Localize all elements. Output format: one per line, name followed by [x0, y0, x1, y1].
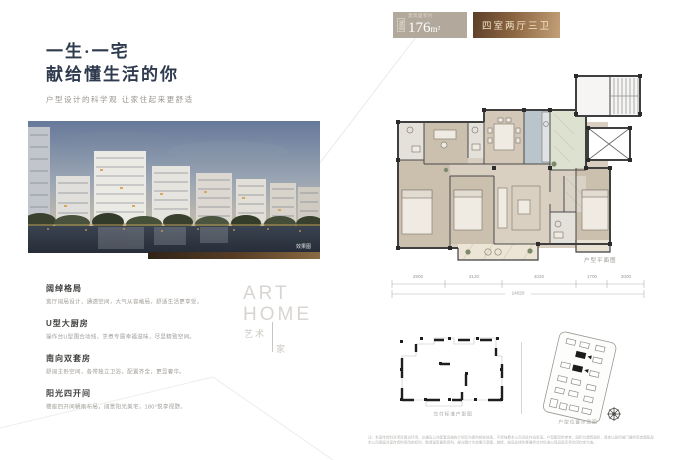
feature-item: 南向双套房 舒阔主卧空间，各带独立卫浴，配置齐全，更显奢华。: [46, 353, 236, 376]
feature-item: U型大厨房 操作台U型围合动线，烹煮专属幸福滋味，尽显精致空间。: [46, 318, 236, 341]
feature-heading: 阳光四开间: [46, 388, 236, 399]
feature-desc: 舒阔主卧空间，各带独立卫浴，配置齐全，更显奢华。: [46, 367, 221, 375]
building-render-image: 效果图: [28, 121, 320, 253]
art-home-watermark: ART HOME: [243, 283, 312, 325]
area-unit: m²: [431, 24, 441, 34]
plan-caption: 户型平面图: [584, 256, 617, 264]
structural-plan-caption: 交付标准户型图: [409, 410, 497, 417]
feature-heading: 阔绰格局: [46, 283, 236, 294]
title-line2: 献给懂生活的你: [46, 63, 179, 86]
watermark-cn1: 艺术: [244, 327, 266, 340]
brochure-page: 一生·一宅 献给懂生活的你 户型设计的科学观 让家住起来更舒适: [0, 0, 680, 460]
feature-desc: 楼座四开间朝南布局，阔景阳光美宅，180°悦享视野。: [46, 402, 221, 410]
dim-total: 14020: [512, 291, 525, 296]
stairwell: [574, 74, 642, 116]
page-title: 一生·一宅 献给懂生活的你: [46, 40, 179, 86]
watermark-en2: HOME: [243, 304, 312, 325]
photo-shadow-bar: [148, 252, 320, 259]
floor-plan: 户型平面图: [388, 72, 652, 272]
photo-caption: 效果图: [296, 243, 311, 250]
layout-badge: 四室两厅三卫: [473, 12, 560, 38]
dim-seg-5: 2000: [621, 274, 632, 279]
disclaimer-line2: 本公司保留对宣传资料修改的权利，敬请留意最新资料。部分图片为效果示意图，装修、部…: [368, 440, 654, 445]
feature-desc: 宽厅阔局设计，通透空间，大气从容格局，舒适生活更享受。: [46, 297, 221, 305]
structural-plan-diagram: [396, 334, 508, 410]
elevator: [586, 126, 632, 162]
dim-seg-2: 3120: [469, 274, 480, 279]
site-plan-diagram: [526, 330, 630, 430]
feature-heading: U型大厨房: [46, 318, 236, 329]
dimension-line: 2900 3120 4020 1700 2000 14020: [388, 272, 652, 300]
site-plan-caption: 户型位置示意图: [533, 418, 623, 425]
dim-seg-3: 4020: [534, 274, 545, 279]
feature-list: 阔绰格局 宽厅阔局设计，通透空间，大气从容格局，舒适生活更享受。 U型大厨房 操…: [46, 283, 236, 423]
area-side-label: 建面: [397, 18, 405, 32]
dim-seg-4: 1700: [587, 274, 598, 279]
feature-item: 阳光四开间 楼座四开间朝南布局，阔景阳光美宅，180°悦享视野。: [46, 388, 236, 411]
page-subtitle: 户型设计的科学观 让家住起来更舒适: [46, 94, 194, 105]
mini-divider: [521, 342, 522, 414]
area-badge: 建面 建筑面积约 176m²: [393, 12, 467, 38]
feature-heading: 南向双套房: [46, 353, 236, 364]
dim-seg-1: 2900: [413, 274, 424, 279]
watermark-divider: [272, 322, 273, 352]
title-line1: 一生·一宅: [46, 40, 179, 63]
watermark-cn2: 家: [276, 342, 285, 355]
feature-desc: 操作台U型围合动线，烹煮专属幸福滋味，尽显精致空间。: [46, 332, 221, 340]
area-value: 176: [408, 20, 431, 36]
disclaimer: 注：本宣传资料对项目周边环境、交通及公共配套设施的介绍仅为提供相关信息，不意味着…: [368, 435, 656, 453]
watermark-en1: ART: [243, 283, 312, 304]
feature-item: 阔绰格局 宽厅阔局设计，通透空间，大气从容格局，舒适生活更享受。: [46, 283, 236, 306]
